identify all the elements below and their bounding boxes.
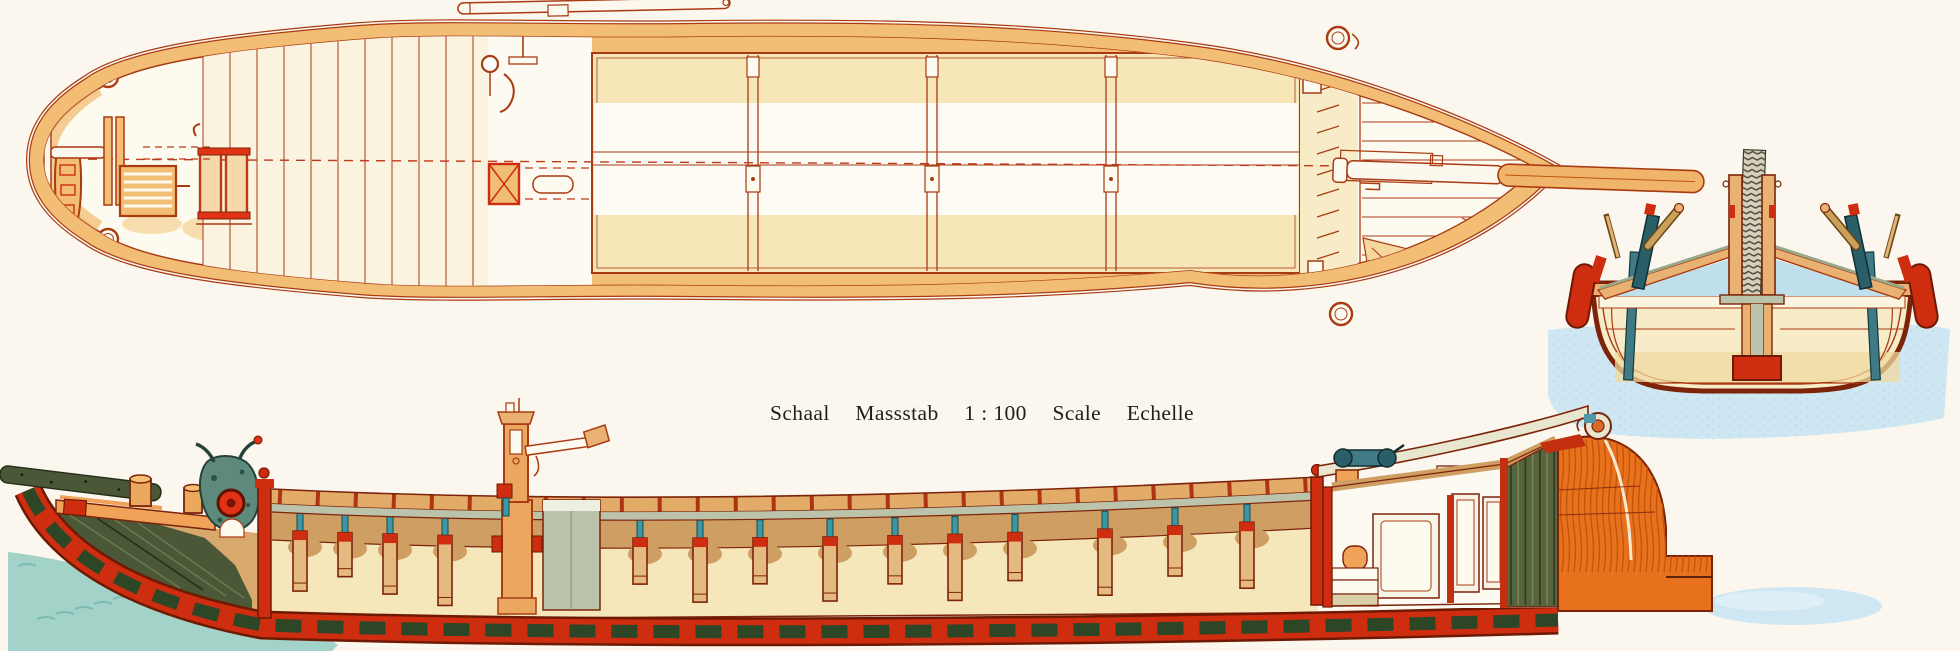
bow-frame: [1500, 458, 1508, 608]
cabin-front-frame: [1323, 487, 1332, 607]
longitudinal-section-view: [0, 398, 1882, 651]
rudder-head-block: [63, 499, 86, 515]
aft-bulkhead-post: [258, 486, 271, 618]
stowed-boom: [458, 0, 730, 18]
cross-section-view: [1545, 150, 1955, 448]
fore-coaming-post: [1311, 477, 1323, 605]
tiller-bar: [51, 147, 105, 158]
plan-view: [18, 0, 1705, 325]
cabin-frame: [1447, 495, 1454, 603]
caption-word-schaal: Schaal: [770, 401, 830, 426]
bow-stem: [1558, 437, 1712, 611]
scale-caption: Schaal Massstab 1 : 100 Scale Echelle: [770, 401, 1194, 426]
mast-roller: [533, 176, 573, 193]
caption-word-scale: Scale: [1053, 401, 1102, 426]
ship-plans-plate: Schaal Massstab 1 : 100 Scale Echelle: [0, 0, 1960, 651]
mast-deck: [488, 30, 592, 287]
mast-longitudinal: [492, 398, 610, 614]
caption-scale-ratio: 1 : 100: [964, 401, 1027, 426]
stove-arch: [1343, 546, 1367, 570]
caption-word-massstab: Massstab: [855, 401, 938, 426]
halyard-ring: [482, 56, 498, 72]
ship-plan-drawing: [0, 0, 1960, 651]
cargo-hatch: [592, 31, 1300, 292]
keelson-block: [1733, 356, 1781, 380]
plan-deck-features: [18, 12, 1560, 300]
derrick-arm: [524, 425, 610, 456]
caption-word-echelle: Echelle: [1127, 401, 1194, 426]
